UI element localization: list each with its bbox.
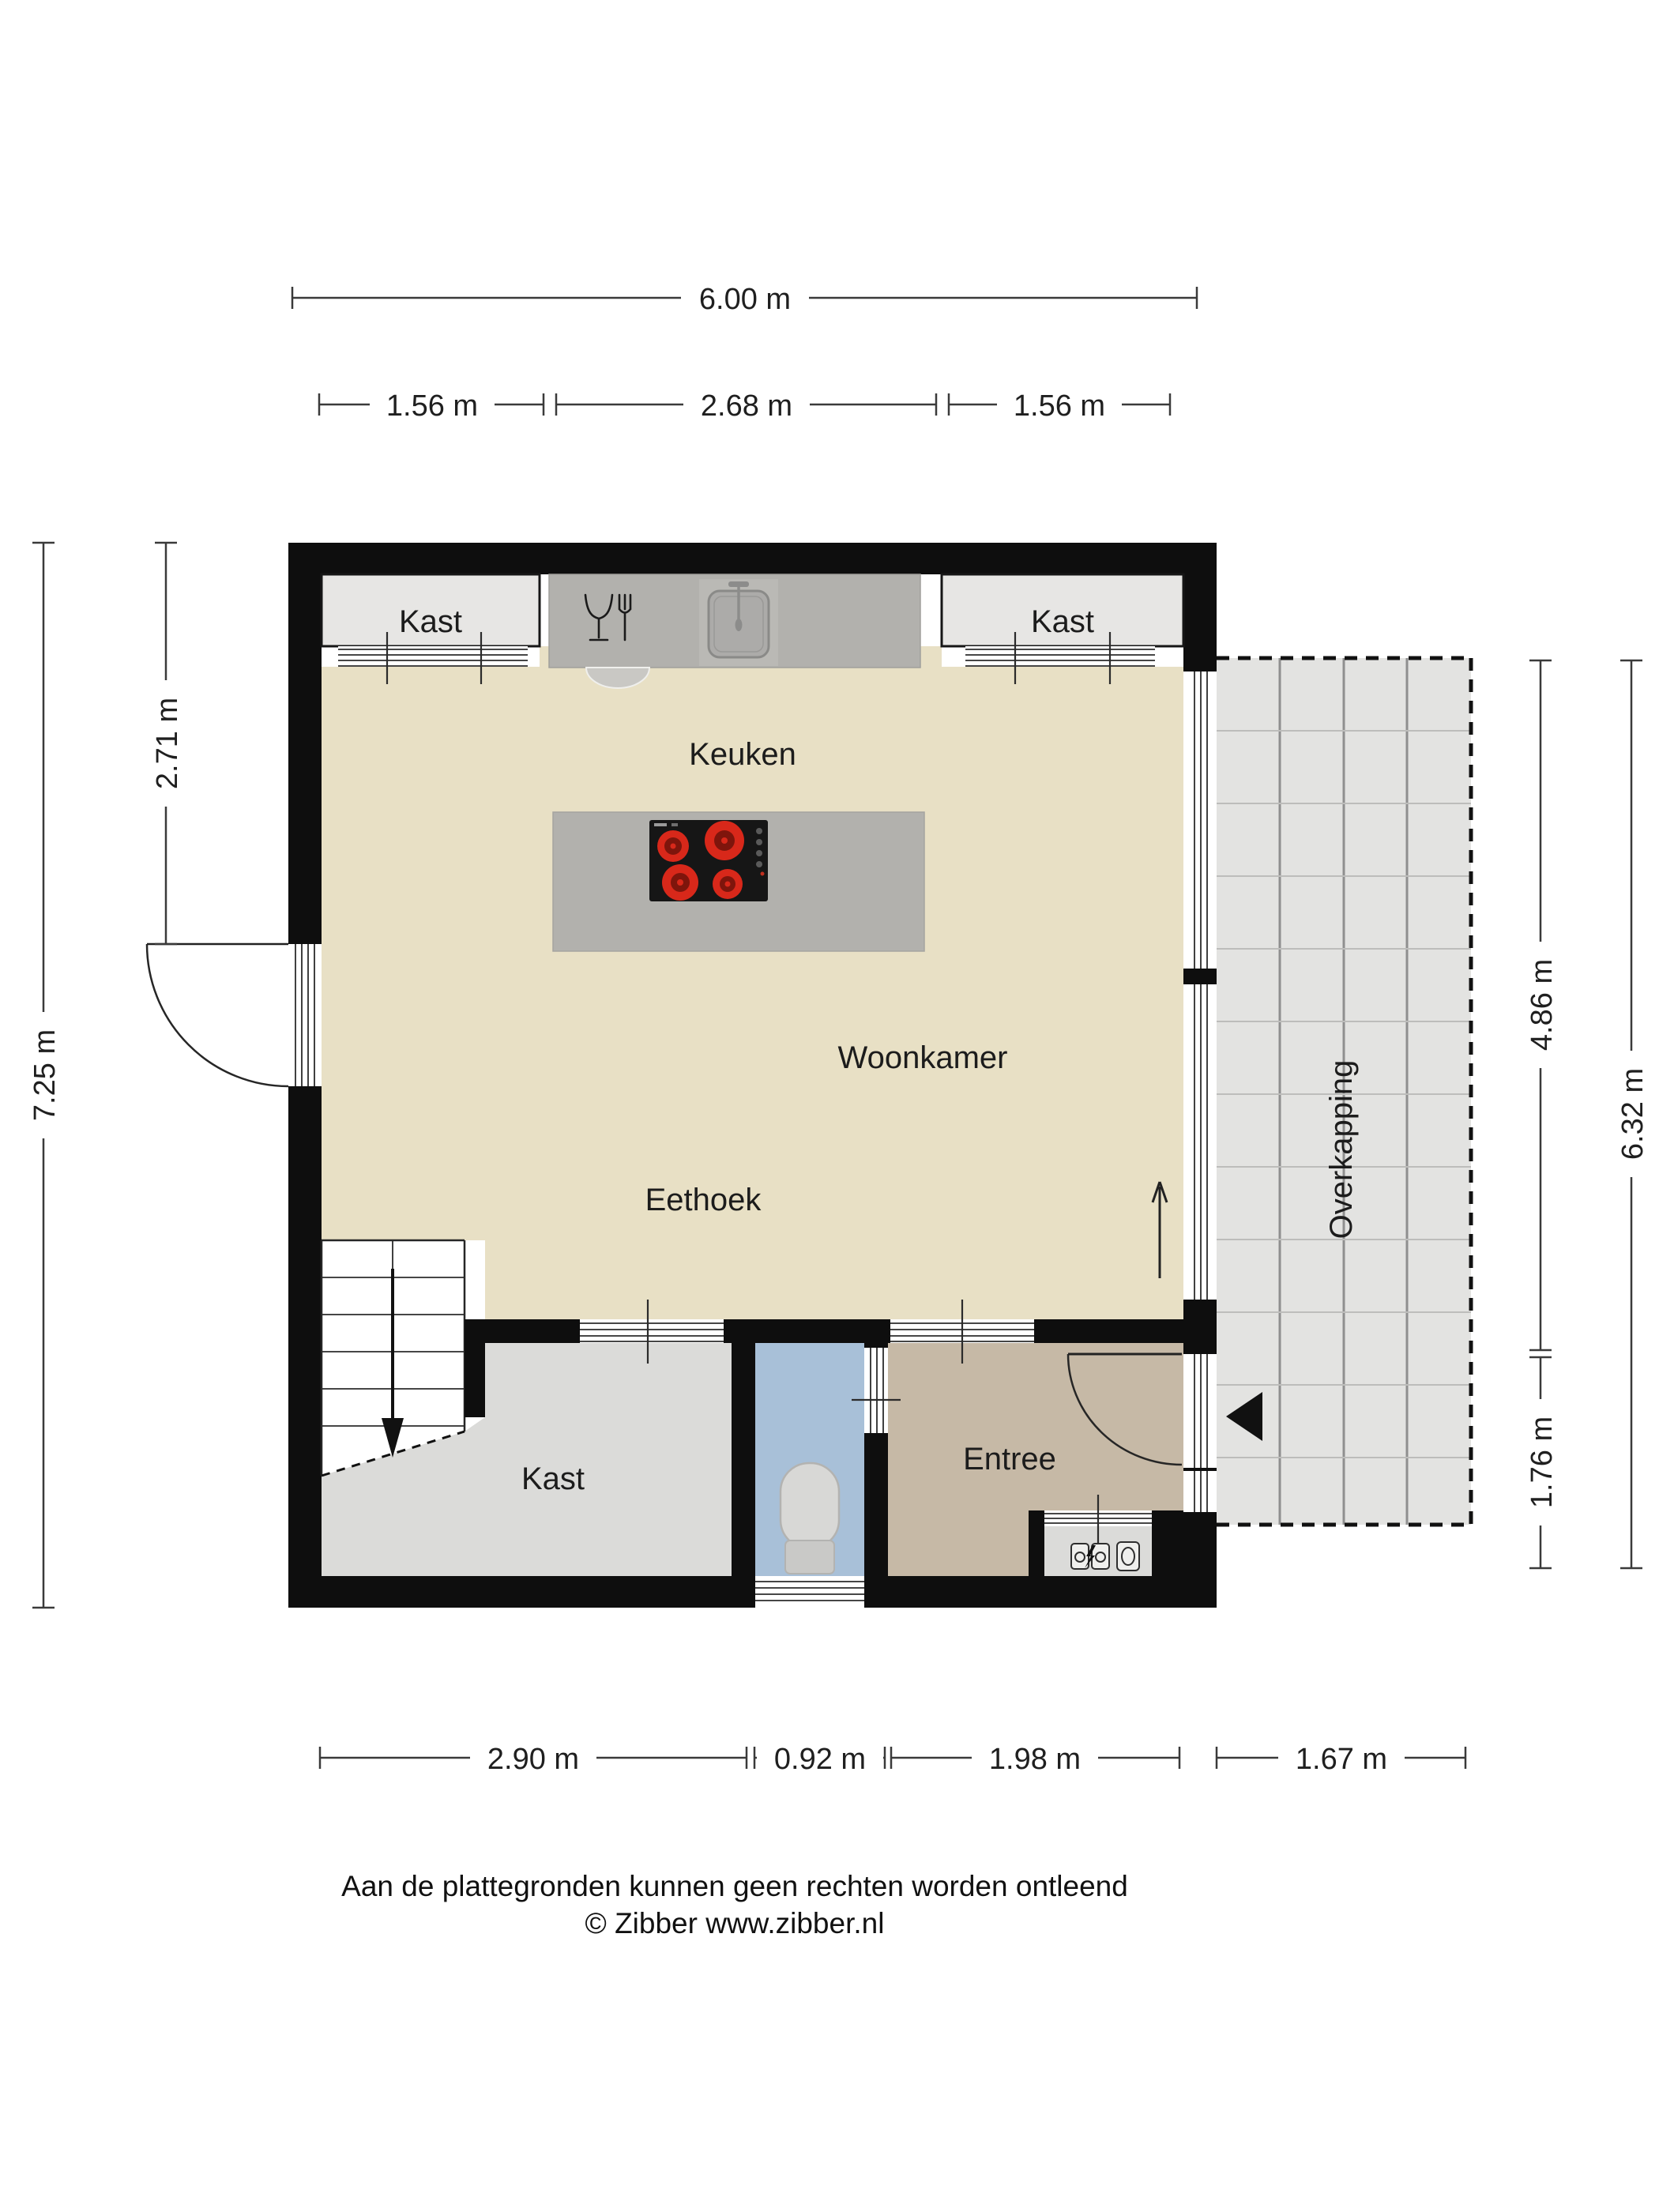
wall-top bbox=[288, 543, 1217, 574]
svg-text:2.71 m: 2.71 m bbox=[151, 698, 184, 789]
svg-text:2.90 m: 2.90 m bbox=[487, 1743, 579, 1776]
svg-text:1.67 m: 1.67 m bbox=[1296, 1743, 1387, 1776]
svg-text:1.98 m: 1.98 m bbox=[989, 1743, 1081, 1776]
footer-disclaimer: Aan de plattegronden kunnen geen rechten… bbox=[341, 1870, 1128, 1902]
toilet-wall-left bbox=[732, 1343, 755, 1576]
overkapping-area: Overkapping bbox=[1217, 658, 1471, 1525]
burner bbox=[713, 869, 743, 899]
dimension-top-segments: 1.56 m 2.68 m 1.56 m bbox=[319, 386, 1170, 423]
dimension-left-total: 7.25 m bbox=[25, 543, 62, 1608]
wall-bottom bbox=[288, 1576, 1217, 1608]
door-arc bbox=[147, 944, 288, 1086]
burner bbox=[657, 830, 689, 862]
kitchen-island bbox=[553, 812, 924, 951]
sink-icon bbox=[699, 579, 778, 666]
water-meter-icon bbox=[1117, 1542, 1139, 1571]
woonkamer-label: Woonkamer bbox=[838, 1040, 1008, 1075]
svg-text:7.25 m: 7.25 m bbox=[28, 1029, 62, 1121]
right-wall-window-large bbox=[1183, 671, 1217, 1300]
dimension-bottom-segments: 2.90 m 0.92 m 1.98 m 1.67 m bbox=[320, 1740, 1465, 1776]
burner bbox=[662, 864, 698, 901]
floor-plan: Overkapping Kast bbox=[0, 0, 1659, 2212]
window-mullion bbox=[1183, 969, 1217, 984]
svg-text:6.00 m: 6.00 m bbox=[699, 283, 791, 316]
footer-copyright: © Zibber www.zibber.nl bbox=[585, 1907, 885, 1939]
svg-text:1.76 m: 1.76 m bbox=[1525, 1416, 1559, 1508]
closet-bottom-label: Kast bbox=[521, 1461, 585, 1496]
dimension-right-lower: 1.76 m bbox=[1522, 1357, 1559, 1568]
cooktop-icon bbox=[649, 820, 768, 901]
svg-text:6.32 m: 6.32 m bbox=[1616, 1068, 1650, 1160]
dimension-right-upper: 4.86 m bbox=[1522, 660, 1559, 1350]
svg-text:0.92 m: 0.92 m bbox=[774, 1743, 866, 1776]
toilet-bottom-window bbox=[755, 1576, 864, 1608]
entree-label: Entree bbox=[963, 1442, 1056, 1477]
eethoek-label: Eethoek bbox=[645, 1183, 762, 1217]
svg-text:1.56 m: 1.56 m bbox=[1014, 389, 1105, 423]
burner bbox=[705, 821, 744, 860]
svg-text:4.86 m: 4.86 m bbox=[1525, 959, 1559, 1051]
overkapping-label-group: Overkapping bbox=[1324, 1060, 1359, 1240]
dimension-left-inner: 2.71 m bbox=[148, 543, 184, 944]
dimension-top-total: 6.00 m bbox=[292, 280, 1197, 316]
svg-text:1.56 m: 1.56 m bbox=[386, 389, 478, 423]
keuken-label: Keuken bbox=[689, 737, 796, 772]
svg-text:2.68 m: 2.68 m bbox=[701, 389, 792, 423]
closet-top-right-label: Kast bbox=[1031, 604, 1094, 639]
right-wall-window-small bbox=[1183, 1471, 1217, 1512]
closet-top-left-label: Kast bbox=[399, 604, 462, 639]
overkapping-label: Overkapping bbox=[1324, 1060, 1359, 1240]
dimension-right-total: 6.32 m bbox=[1613, 660, 1650, 1568]
side-door bbox=[147, 944, 322, 1086]
toilet-icon bbox=[781, 1463, 839, 1574]
